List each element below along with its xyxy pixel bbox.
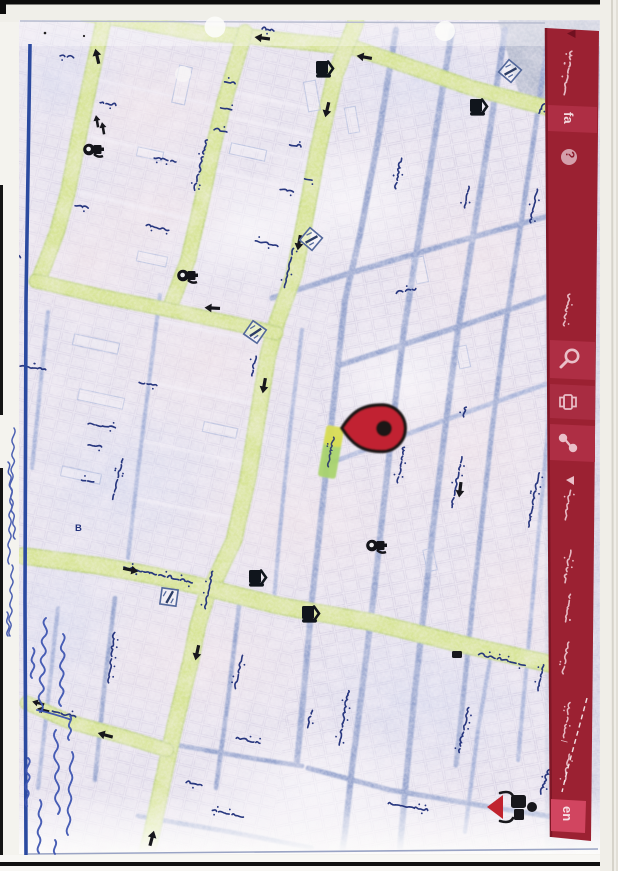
svg-text:?: ?: [563, 151, 577, 158]
svg-text:en: en: [560, 806, 575, 821]
svg-text:B: B: [75, 523, 82, 534]
svg-text:fa: fa: [561, 112, 576, 124]
